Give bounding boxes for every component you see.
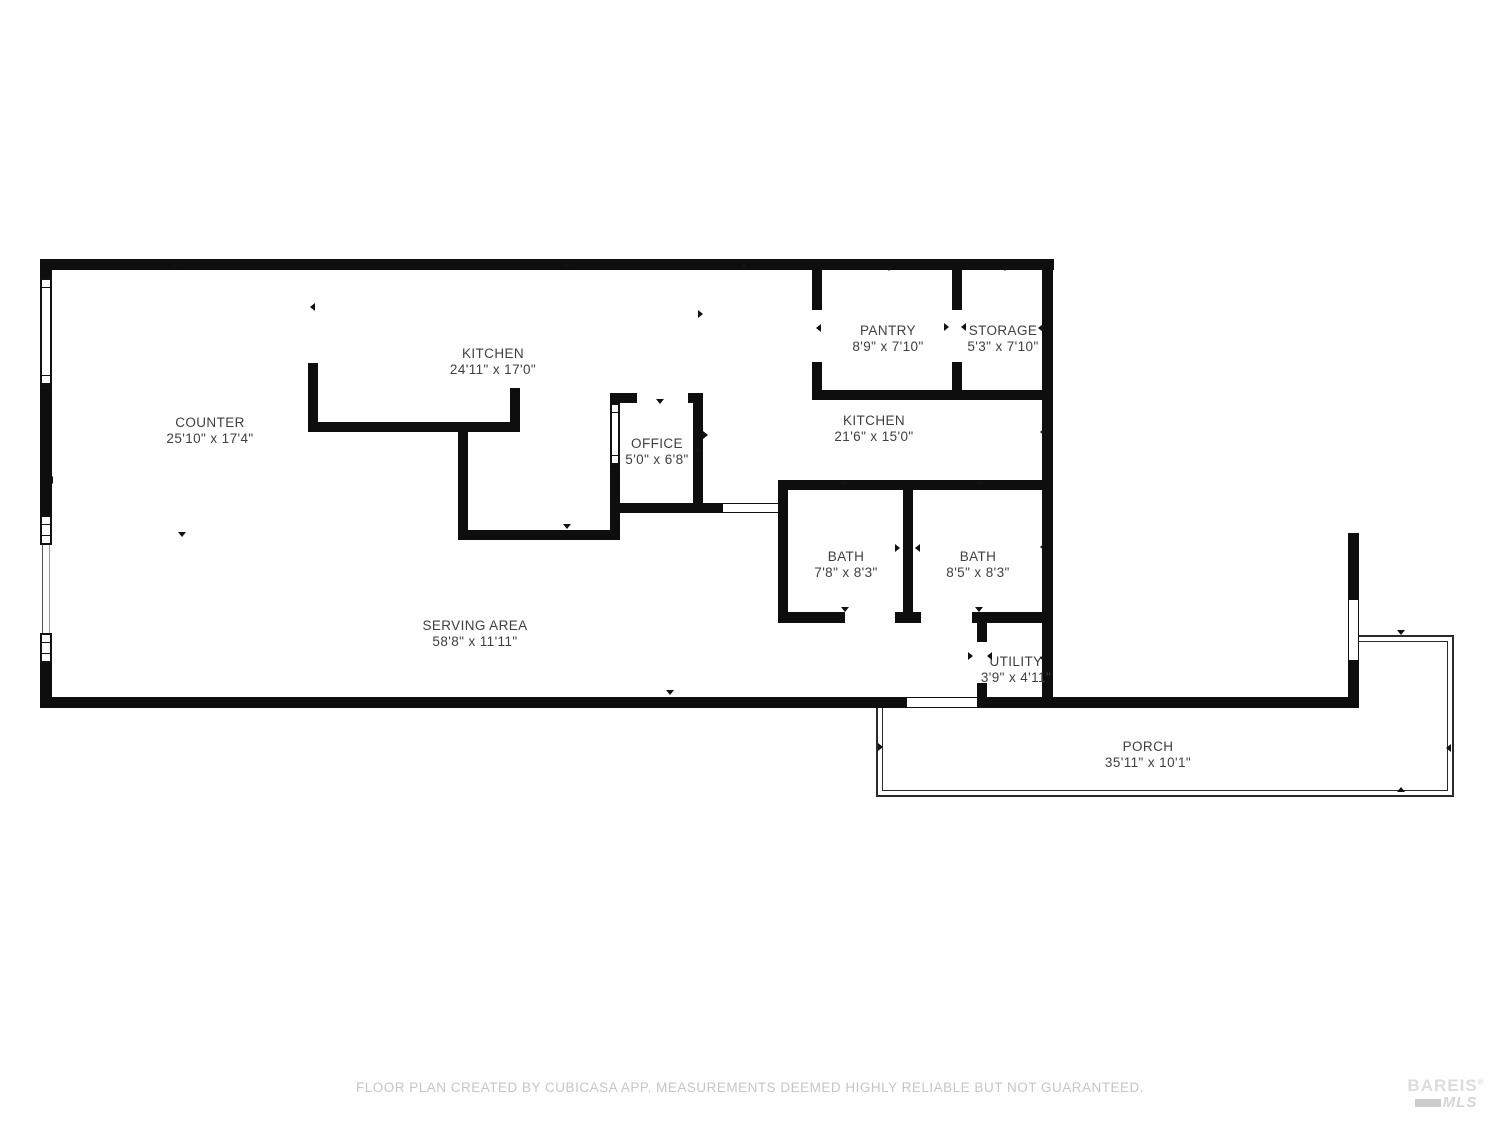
window xyxy=(40,515,52,545)
direction-marker-icon xyxy=(975,481,983,486)
window xyxy=(40,633,52,663)
window xyxy=(40,278,52,385)
direction-marker-icon xyxy=(178,532,186,537)
porch-outline-inner xyxy=(882,790,1448,791)
direction-marker-icon xyxy=(968,652,973,660)
pantry-bottom-wall xyxy=(812,390,1053,400)
direction-marker-icon xyxy=(656,399,664,404)
direction-marker-icon xyxy=(695,446,700,454)
exterior-wall-left-segment xyxy=(40,385,52,515)
room-label-storage: STORAGE 5'3" x 7'10" xyxy=(967,323,1038,355)
direction-marker-icon xyxy=(310,303,315,311)
exterior-wall-top xyxy=(40,259,1054,270)
porch-wall-stub xyxy=(1348,660,1359,708)
porch-outline xyxy=(876,708,878,797)
room-label-serving-area: SERVING AREA 58'8" x 11'11" xyxy=(422,618,527,650)
direction-marker-icon xyxy=(698,310,703,318)
exterior-wall-left-segment xyxy=(40,259,52,278)
counter-wall xyxy=(458,422,468,540)
direction-marker-icon xyxy=(170,264,178,269)
direction-marker-icon xyxy=(1040,543,1045,551)
direction-marker-icon xyxy=(975,607,983,612)
direction-marker-icon xyxy=(666,690,674,695)
logo-bar xyxy=(1415,1099,1441,1107)
direction-marker-icon xyxy=(841,607,849,612)
direction-marker-icon xyxy=(563,264,571,269)
utility-left-wall xyxy=(977,623,987,642)
porch-outline xyxy=(1359,635,1454,637)
registered-trademark-icon: ® xyxy=(1478,1077,1485,1086)
utility-left-wall xyxy=(977,683,987,708)
counter-wall xyxy=(308,422,520,432)
office-window xyxy=(610,403,620,465)
pantry-storage-divider xyxy=(952,270,962,310)
office-left-wall-cap xyxy=(610,393,620,403)
direction-marker-icon xyxy=(987,652,992,660)
window-wide xyxy=(42,545,50,633)
bath1-bottom-wall xyxy=(778,612,845,623)
direction-marker-icon xyxy=(915,544,920,552)
kitchen-bath-wall xyxy=(778,480,1053,490)
counter-wall xyxy=(510,388,520,432)
porch-wall-stub xyxy=(1348,533,1359,600)
direction-marker-icon xyxy=(563,524,571,529)
direction-marker-icon xyxy=(1038,324,1043,332)
direction-marker-icon xyxy=(1040,654,1045,662)
porch-outline-inner xyxy=(1447,641,1448,791)
disclaimer-text: FLOOR PLAN CREATED BY CUBICASA APP. MEAS… xyxy=(0,1080,1500,1095)
doorway-opening xyxy=(723,503,778,513)
exterior-wall-bottom-segment xyxy=(40,697,907,708)
direction-marker-icon xyxy=(1397,787,1405,792)
room-label-porch: PORCH 35'11" x 10'1" xyxy=(1105,739,1191,771)
bath-left-wall xyxy=(778,480,788,623)
bath2-bottom-wall xyxy=(972,612,1053,623)
direction-marker-icon xyxy=(48,476,53,484)
direction-marker-icon xyxy=(944,323,949,331)
direction-marker-icon xyxy=(703,431,708,439)
porch-outline xyxy=(876,795,1454,797)
exterior-wall-bottom-segment xyxy=(980,697,1359,708)
logo-bareis-text: BAREIS® xyxy=(1399,1076,1493,1096)
sliding-door xyxy=(907,697,980,708)
porch-outline-inner xyxy=(1359,641,1448,642)
room-label-kitchen: KITCHEN 21'6" x 15'0" xyxy=(834,413,913,445)
floor-plan-canvas: COUNTER 25'10" x 17'4" KITCHEN 24'11" x … xyxy=(0,0,1500,1125)
room-label-office: OFFICE 5'0" x 6'8" xyxy=(625,436,688,468)
bath-divider-foot xyxy=(895,612,921,623)
room-label-kitchen-island: KITCHEN 24'11" x 17'0" xyxy=(450,346,536,378)
direction-marker-icon xyxy=(895,544,900,552)
direction-marker-icon xyxy=(816,324,821,332)
direction-marker-icon xyxy=(885,266,893,271)
direction-marker-icon xyxy=(1397,630,1405,635)
bath-divider-wall xyxy=(903,480,913,623)
direction-marker-icon xyxy=(740,264,748,269)
direction-marker-icon xyxy=(1040,428,1045,436)
porch-door-opening xyxy=(1348,600,1359,660)
direction-marker-icon xyxy=(841,481,849,486)
room-label-bath-left: BATH 7'8" x 8'3" xyxy=(814,549,877,581)
logo-mls-text: MLS xyxy=(1443,1094,1478,1111)
bareis-mls-logo: BAREIS® MLS xyxy=(1399,1076,1493,1111)
porch-outline xyxy=(1452,635,1454,797)
office-bottom-wall xyxy=(610,503,723,513)
room-label-pantry: PANTRY 8'9" x 7'10" xyxy=(852,323,923,355)
pantry-left-wall xyxy=(812,270,822,310)
direction-marker-icon xyxy=(878,743,883,751)
room-label-counter: COUNTER 25'10" x 17'4" xyxy=(166,415,253,447)
direction-marker-icon xyxy=(1446,744,1451,752)
direction-marker-icon xyxy=(961,323,966,331)
direction-marker-icon xyxy=(1001,266,1009,271)
counter-wall xyxy=(458,530,620,540)
room-label-bath-right: BATH 8'5" x 8'3" xyxy=(946,549,1009,581)
